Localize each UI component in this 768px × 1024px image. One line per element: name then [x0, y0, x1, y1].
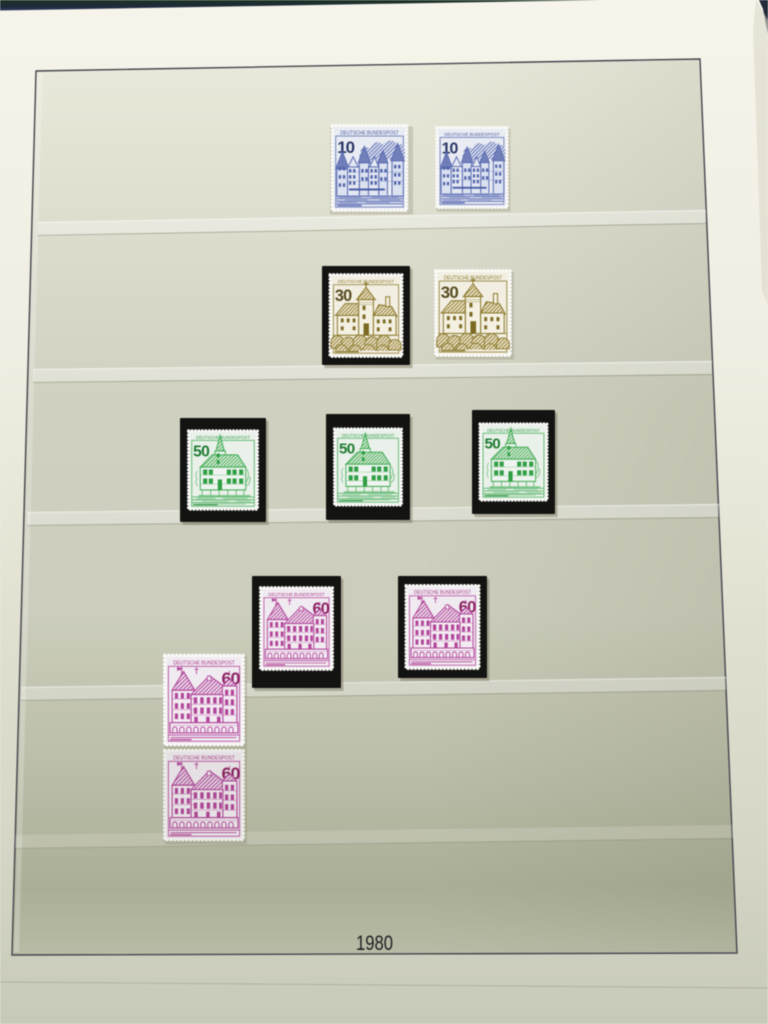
- svg-text:1980: 1980: [356, 932, 393, 955]
